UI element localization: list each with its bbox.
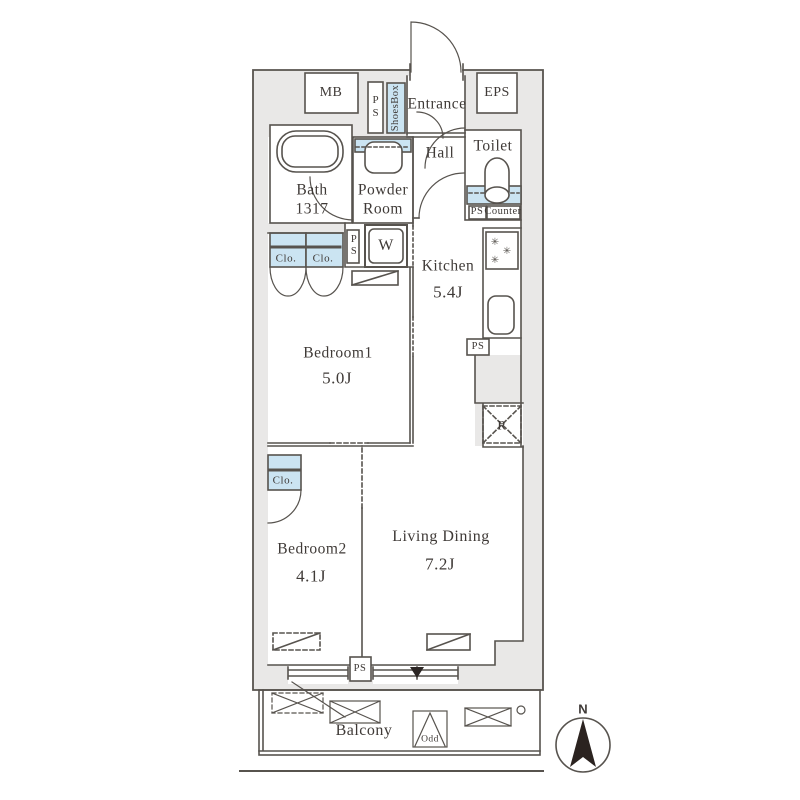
label-kitchen-area: 5.4J xyxy=(433,284,463,301)
label-kitchen: Kitchen xyxy=(422,258,475,274)
label-odd: Odd xyxy=(421,735,439,745)
label-powder-2: Room xyxy=(363,201,403,217)
compass-needle-icon xyxy=(570,719,596,767)
label-ps-nook: PS xyxy=(348,234,359,258)
kitchen-sink-icon xyxy=(488,296,514,334)
label-hall: Hall xyxy=(426,145,455,161)
stove-burner-icon: ✳ xyxy=(491,238,499,248)
compass xyxy=(556,718,610,772)
stove-burner-icon: ✳ xyxy=(503,247,511,257)
label-ps-bottom: PS xyxy=(354,664,367,675)
label-bedroom1-area: 5.0J xyxy=(322,370,352,387)
label-bath-size: 1317 xyxy=(296,201,329,217)
label-fridge: R xyxy=(497,419,506,432)
label-ps-kitchen: PS xyxy=(472,342,485,353)
kitchen-corridor-floor xyxy=(415,355,475,447)
label-mb: MB xyxy=(320,86,343,100)
label-washer: W xyxy=(378,238,394,254)
label-bedroom1: Bedroom1 xyxy=(303,345,372,361)
label-living: Living Dining xyxy=(392,529,490,545)
entrance-door-gap xyxy=(411,64,462,80)
label-counter: Counter xyxy=(484,207,521,218)
label-ps-toilet: PS xyxy=(471,207,484,218)
label-bedroom2-area: 4.1J xyxy=(296,568,326,585)
label-compass-north: N xyxy=(578,703,587,716)
label-toilet: Toilet xyxy=(474,138,513,154)
label-bedroom2: Bedroom2 xyxy=(277,541,346,557)
label-eps: EPS xyxy=(484,86,510,100)
floor-plan-page: MB PS ShoesBox Entrance EPS Hall Toilet … xyxy=(0,0,800,800)
label-closet-2: Clo. xyxy=(313,254,334,265)
label-bath: Bath xyxy=(296,182,327,198)
label-living-area: 7.2J xyxy=(425,556,455,573)
label-closet-3: Clo. xyxy=(273,476,294,487)
label-closet-1: Clo. xyxy=(276,254,297,265)
balcony-floor xyxy=(259,690,540,755)
label-ps-top: PS xyxy=(370,94,381,120)
bedroom2-window-gap xyxy=(288,666,348,684)
label-balcony: Balcony xyxy=(336,723,393,739)
label-powder-1: Powder xyxy=(358,182,408,198)
label-entrance: Entrance xyxy=(407,96,466,112)
toilet-bowl-icon xyxy=(485,187,509,203)
stove-burner-icon: ✳ xyxy=(491,256,499,266)
label-shoes-box: ShoesBox xyxy=(391,85,402,132)
